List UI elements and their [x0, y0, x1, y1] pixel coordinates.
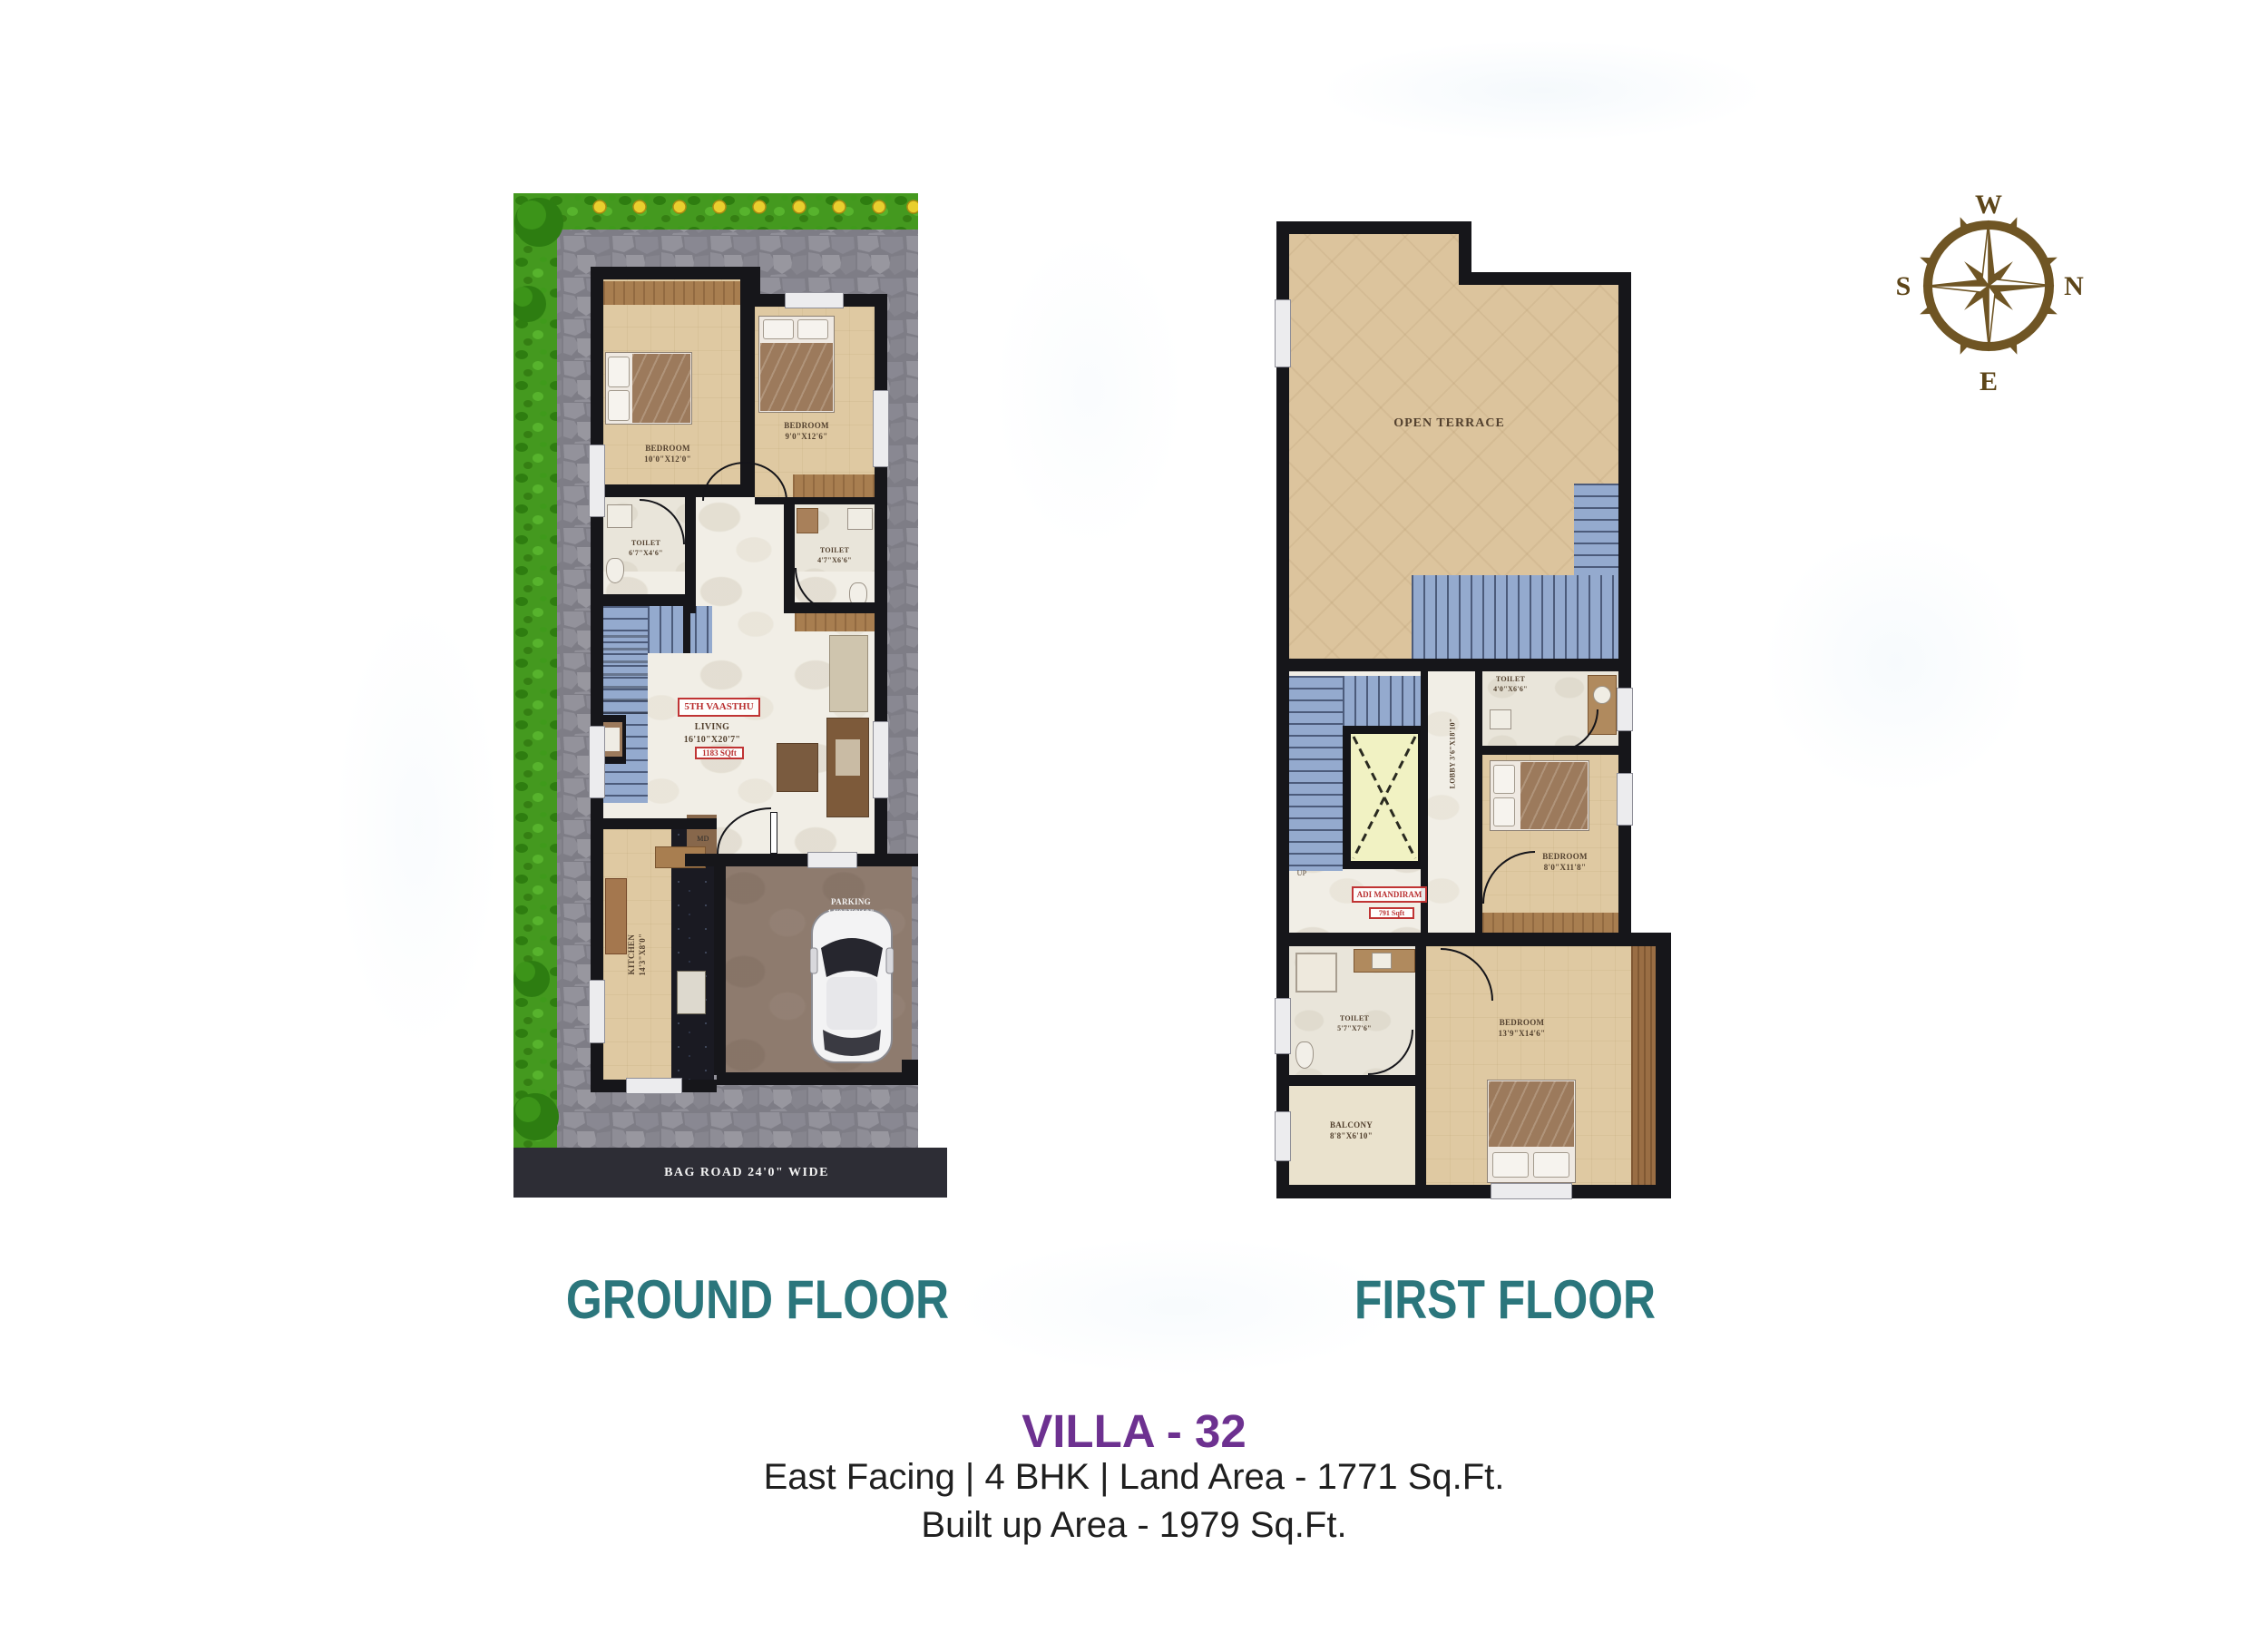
svg-text:E: E: [1980, 367, 1998, 396]
svg-text:W: W: [1975, 190, 2002, 220]
svg-text:S: S: [1896, 271, 1911, 301]
svg-text:N: N: [2064, 271, 2084, 301]
